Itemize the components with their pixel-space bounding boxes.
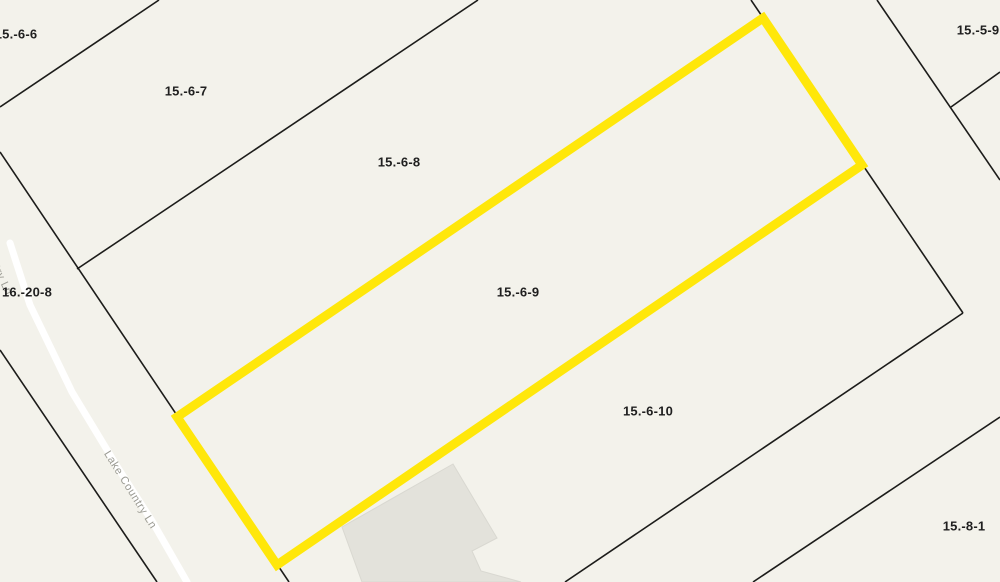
parcel-label-15.-5-9: 15.-5-9 — [957, 22, 1000, 37]
parcel-label-15.-6-7: 15.-6-7 — [165, 83, 208, 98]
road-west-boundary — [0, 350, 157, 582]
parcel-map-canvas[interactable]: Lake Country LnLake Country Ln15.-6-615.… — [0, 0, 1000, 582]
parcel-label-15.-6-9: 15.-6-9 — [497, 284, 540, 299]
boundary-15-5-9-south — [951, 72, 1000, 107]
parcel-label-15.-6-8: 15.-6-8 — [378, 154, 421, 169]
parcel-label-16.-20-8: 16.-20-8 — [2, 284, 52, 299]
building-layer — [342, 464, 521, 582]
boundary-15-6-10-south — [565, 313, 963, 582]
parcel-label-15.-6-10: 15.-6-10 — [623, 403, 673, 418]
map-labels-layer: Lake Country LnLake Country Ln15.-6-615.… — [0, 22, 999, 533]
parcel-label-15.-6-6: 15.-6-6 — [0, 26, 37, 41]
parcel-label-15.-8-1: 15.-8-1 — [943, 518, 986, 533]
boundary-15-6-6--15-6-7 — [0, 0, 159, 107]
road-label-lake-country-ln-0: Lake Country Ln — [101, 449, 159, 531]
boundary-15-6-7--15-6-8 — [77, 0, 478, 269]
map-viewport[interactable]: Lake Country LnLake Country Ln15.-6-615.… — [0, 0, 1000, 582]
building-footprint — [342, 464, 521, 582]
boundary-15-8-1-north — [753, 417, 1000, 582]
